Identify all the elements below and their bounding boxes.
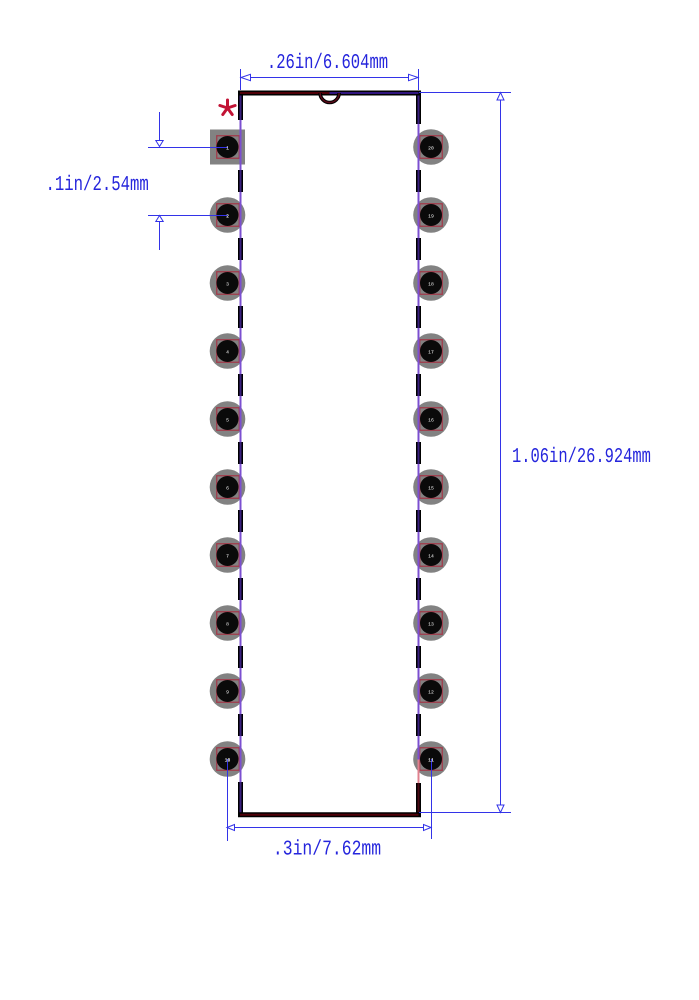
svg-text:17: 17	[428, 349, 434, 355]
svg-text:6: 6	[226, 485, 229, 491]
svg-text:14: 14	[428, 553, 434, 559]
svg-text:8: 8	[226, 621, 229, 627]
svg-text:.26in/6.604mm: .26in/6.604mm	[267, 52, 388, 75]
svg-text:2: 2	[226, 213, 229, 219]
svg-text:20: 20	[428, 145, 434, 151]
svg-text:3: 3	[226, 281, 229, 287]
svg-text:1.06in/26.924mm: 1.06in/26.924mm	[512, 446, 651, 469]
svg-text:.1in/2.54mm: .1in/2.54mm	[46, 174, 149, 197]
svg-text:19: 19	[428, 213, 434, 219]
svg-text:11: 11	[428, 757, 434, 763]
svg-text:18: 18	[428, 281, 434, 287]
svg-text:4: 4	[226, 349, 229, 355]
svg-text:13: 13	[428, 621, 434, 627]
svg-text:12: 12	[428, 689, 434, 695]
svg-text:15: 15	[428, 485, 434, 491]
svg-text:1: 1	[226, 145, 229, 151]
svg-text:7: 7	[226, 553, 229, 559]
svg-text:.3in/7.62mm: .3in/7.62mm	[273, 839, 381, 862]
svg-text:10: 10	[225, 757, 231, 763]
svg-text:16: 16	[428, 417, 434, 423]
svg-text:9: 9	[226, 689, 229, 695]
svg-text:5: 5	[226, 417, 229, 423]
